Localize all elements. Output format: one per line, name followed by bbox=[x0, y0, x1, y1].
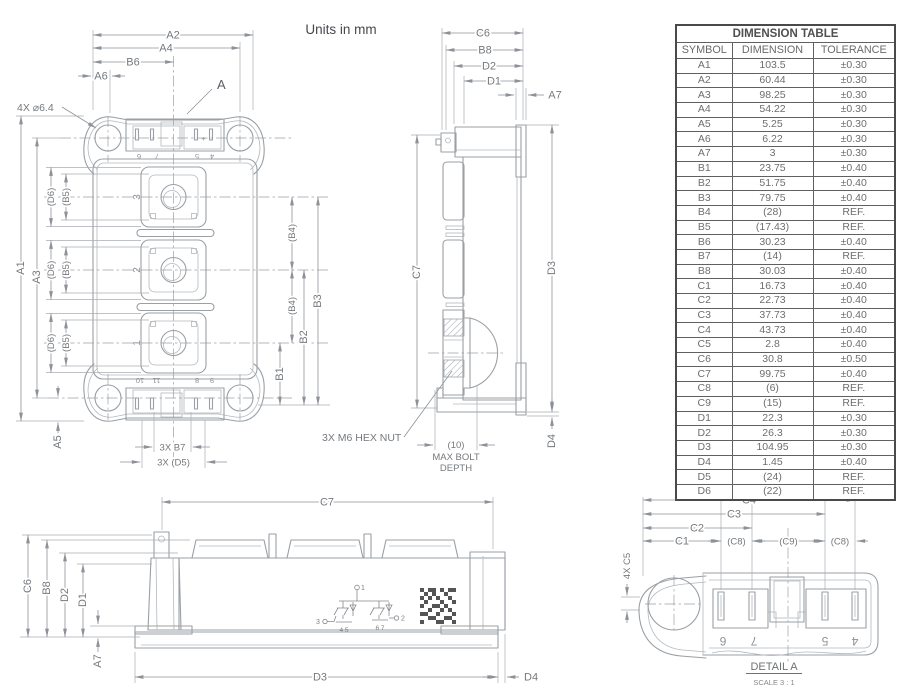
table-header-row: SYMBOL DIMENSION TOLERANCE bbox=[676, 43, 895, 59]
terminal-bump bbox=[382, 540, 458, 558]
symbol-cell: C4 bbox=[676, 323, 732, 338]
tolerance-cell: ±0.40 bbox=[813, 294, 895, 309]
symbol-cell: C8 bbox=[676, 382, 732, 397]
dim-b4: (B4) bbox=[287, 224, 298, 242]
table-row: D122.3±0.30 bbox=[676, 411, 895, 426]
symbol-cell: D1 bbox=[676, 411, 732, 426]
tolerance-cell: ±0.40 bbox=[813, 338, 895, 353]
dim-c8: (C8) bbox=[831, 537, 849, 548]
aux-pin bbox=[151, 398, 154, 409]
symbol-cell: B7 bbox=[676, 249, 732, 264]
dim-a6: A6 bbox=[94, 71, 107, 83]
circuit-schematic: 1 3 2 4 5 6 7 bbox=[316, 585, 405, 634]
dim-a2: A2 bbox=[166, 30, 179, 42]
side-view: C6 B8 D2 D1 A7 C7 D3 D4 bbox=[322, 28, 562, 475]
table-row: D3104.95±0.30 bbox=[676, 440, 895, 455]
dimension-cell: 30.23 bbox=[732, 235, 813, 250]
dimension-cell: 43.73 bbox=[732, 323, 813, 338]
dimension-cell: 26.3 bbox=[732, 426, 813, 441]
dimension-cell: 5.25 bbox=[732, 117, 813, 132]
table-row: B379.75±0.40 bbox=[676, 191, 895, 206]
terminal-bump bbox=[287, 540, 363, 558]
symbol-cell: B5 bbox=[676, 220, 732, 235]
tolerance-cell: REF. bbox=[813, 205, 895, 220]
units-note: Units in mm bbox=[286, 22, 396, 37]
dim-b4: (B4) bbox=[287, 297, 298, 315]
dim-c1: C1 bbox=[675, 536, 689, 548]
dimension-cell: (24) bbox=[732, 470, 813, 485]
symbol-cell: A6 bbox=[676, 132, 732, 147]
dim-b2: B2 bbox=[298, 330, 310, 343]
symbol-cell: B4 bbox=[676, 205, 732, 220]
drawing-sheet: Units in mm bbox=[0, 0, 909, 698]
pin-number: 5 bbox=[195, 152, 199, 161]
tolerance-cell: ±0.30 bbox=[813, 411, 895, 426]
symbol-cell: B6 bbox=[676, 235, 732, 250]
table-row: D6(22)REF. bbox=[676, 484, 895, 499]
dimension-cell: 54.22 bbox=[732, 103, 813, 118]
table-row: B5(17.43)REF. bbox=[676, 220, 895, 235]
table-row: C443.73±0.40 bbox=[676, 323, 895, 338]
dim-b7: 3X B7 bbox=[160, 443, 186, 454]
schematic-left-pins: 4 5 bbox=[339, 627, 348, 634]
dim-d3: D3 bbox=[546, 261, 558, 275]
aux-pin bbox=[151, 129, 154, 140]
dim-a4: A4 bbox=[159, 43, 172, 55]
dimension-cell: 16.73 bbox=[732, 279, 813, 294]
dimension-cell: 51.75 bbox=[732, 176, 813, 191]
dim-d4: D4 bbox=[524, 672, 538, 684]
table-row: A260.44±0.30 bbox=[676, 73, 895, 88]
symbol-cell: C6 bbox=[676, 352, 732, 367]
symbol-cell: C9 bbox=[676, 396, 732, 411]
hex-nut-note: 3X M6 HEX NUT bbox=[322, 432, 402, 444]
detail-dimensions: C4 C3 C2 C1 (C8) (C9) (C8) 4X C5 bbox=[621, 495, 868, 624]
table-row: B123.75±0.40 bbox=[676, 161, 895, 176]
pin-number: 6 bbox=[719, 634, 726, 648]
dim-b5: (B5) bbox=[61, 261, 72, 279]
tolerance-cell: ±0.40 bbox=[813, 367, 895, 382]
table-row: C337.73±0.40 bbox=[676, 308, 895, 323]
tolerance-cell: ±0.40 bbox=[813, 279, 895, 294]
dimension-cell: 99.75 bbox=[732, 367, 813, 382]
dimension-cell: (6) bbox=[732, 382, 813, 397]
table-row: A1103.5±0.30 bbox=[676, 59, 895, 74]
tolerance-cell: ±0.30 bbox=[813, 132, 895, 147]
tolerance-cell: ±0.40 bbox=[813, 161, 895, 176]
table-row: B4(28)REF. bbox=[676, 205, 895, 220]
table-row: B630.23±0.40 bbox=[676, 235, 895, 250]
schematic-node-3: 3 bbox=[316, 619, 320, 626]
aux-pin bbox=[195, 398, 198, 409]
aux-pin bbox=[195, 129, 198, 140]
bottom-dimensions: C7 C6 B8 D2 D1 A7 D3 bbox=[20, 497, 538, 684]
symbol-cell: D5 bbox=[676, 470, 732, 485]
tolerance-cell: REF. bbox=[813, 382, 895, 397]
dimension-cell: 30.8 bbox=[732, 352, 813, 367]
tolerance-cell: ±0.30 bbox=[813, 440, 895, 455]
dimension-cell: 104.95 bbox=[732, 440, 813, 455]
tolerance-cell: REF. bbox=[813, 249, 895, 264]
symbol-cell: B2 bbox=[676, 176, 732, 191]
qr-code bbox=[420, 588, 456, 624]
dim-b3: B3 bbox=[312, 294, 324, 307]
dimension-cell: 22.73 bbox=[732, 294, 813, 309]
dim-d1: D1 bbox=[487, 76, 501, 88]
dim-a5: A5 bbox=[52, 435, 64, 448]
polarity-mark: + bbox=[201, 134, 206, 143]
table-row: D5(24)REF. bbox=[676, 470, 895, 485]
pin-number: 4 bbox=[851, 634, 858, 648]
bottom-view: 1 3 2 4 5 6 7 bbox=[20, 497, 538, 684]
bolt-depth-value: (10) bbox=[448, 440, 465, 451]
bolt-depth-note-line1: MAX BOLT bbox=[432, 452, 480, 463]
symbol-cell: C5 bbox=[676, 338, 732, 353]
dim-c2: C2 bbox=[690, 523, 704, 535]
dim-d6: (D6) bbox=[46, 188, 57, 206]
tolerance-cell: ±0.30 bbox=[813, 103, 895, 118]
hex-nut-section bbox=[444, 360, 464, 377]
tolerance-cell: ±0.40 bbox=[813, 264, 895, 279]
detail-callout-a: A bbox=[217, 77, 226, 92]
tolerance-cell: ±0.40 bbox=[813, 455, 895, 470]
dim-c6: C6 bbox=[476, 28, 490, 40]
symbol-cell: D3 bbox=[676, 440, 732, 455]
dim-c7: C7 bbox=[320, 497, 334, 509]
dim-c6: C6 bbox=[22, 579, 34, 593]
table-row: C222.73±0.40 bbox=[676, 294, 895, 309]
pin-number: 9 bbox=[210, 376, 214, 385]
dimension-cell: 1.45 bbox=[732, 455, 813, 470]
dim-c7: C7 bbox=[411, 265, 423, 279]
pin-number: 5 bbox=[821, 634, 828, 648]
table-row: A55.25±0.30 bbox=[676, 117, 895, 132]
dimension-cell: 2.8 bbox=[732, 338, 813, 353]
symbol-cell: C2 bbox=[676, 294, 732, 309]
detail-caption: DETAIL A SCALE 3 : 1 bbox=[746, 661, 802, 687]
table-row: A454.22±0.30 bbox=[676, 103, 895, 118]
dimension-table-rows: A1103.5±0.30A260.44±0.30A398.25±0.30A454… bbox=[676, 59, 895, 500]
dim-b8: B8 bbox=[41, 581, 53, 594]
bolt-depth-note-line2: DEPTH bbox=[440, 463, 472, 474]
table-row: C9(15)REF. bbox=[676, 396, 895, 411]
dimension-cell: (17.43) bbox=[732, 220, 813, 235]
dimension-cell: (14) bbox=[732, 249, 813, 264]
pin-number: 7 bbox=[155, 152, 159, 161]
schematic-right-pins: 6 7 bbox=[375, 625, 384, 632]
aux-pin bbox=[136, 398, 139, 409]
symbol-cell: B8 bbox=[676, 264, 732, 279]
tolerance-cell: ±0.30 bbox=[813, 88, 895, 103]
terminal-bump bbox=[192, 540, 268, 558]
table-row: C116.73±0.40 bbox=[676, 279, 895, 294]
dim-d6: (D6) bbox=[46, 261, 57, 279]
dim-d1: D1 bbox=[77, 593, 89, 607]
pin-number: 7 bbox=[750, 634, 757, 648]
tolerance-cell: ±0.30 bbox=[813, 426, 895, 441]
table-row: B830.03±0.40 bbox=[676, 264, 895, 279]
dim-c3: C3 bbox=[727, 509, 741, 521]
detail-outline: 6 7 5 4 bbox=[639, 528, 878, 664]
tolerance-cell: ±0.40 bbox=[813, 323, 895, 338]
symbol-cell: C7 bbox=[676, 367, 732, 382]
front-top-aux-connector: + 6 7 5 4 bbox=[126, 119, 224, 161]
symbol-cell: B1 bbox=[676, 161, 732, 176]
aux-pin bbox=[210, 398, 213, 409]
pin-number: 8 bbox=[195, 376, 199, 385]
symbol-cell: C1 bbox=[676, 279, 732, 294]
column-header-dimension: DIMENSION bbox=[732, 43, 813, 59]
tolerance-cell: ±0.30 bbox=[813, 117, 895, 132]
dim-b1: B1 bbox=[274, 367, 286, 380]
tolerance-cell: REF. bbox=[813, 470, 895, 485]
dim-d5: 3X (D5) bbox=[157, 458, 190, 469]
table-row: C8(6)REF. bbox=[676, 382, 895, 397]
dimension-cell: 79.75 bbox=[732, 191, 813, 206]
pin-number: 11 bbox=[153, 376, 161, 385]
dim-d4: D4 bbox=[546, 434, 558, 448]
dimension-table: DIMENSION TABLE SYMBOL DIMENSION TOLERAN… bbox=[675, 24, 896, 501]
symbol-cell: A5 bbox=[676, 117, 732, 132]
table-row: B7(14)REF. bbox=[676, 249, 895, 264]
tolerance-cell: ±0.40 bbox=[813, 308, 895, 323]
pin-number: 10 bbox=[136, 376, 144, 385]
dim-a7: A7 bbox=[548, 90, 561, 102]
dim-a7: A7 bbox=[92, 654, 104, 667]
front-module-outline bbox=[84, 117, 264, 421]
table-row: A398.25±0.30 bbox=[676, 88, 895, 103]
hex-nut-section bbox=[444, 319, 464, 336]
schematic-node-2: 2 bbox=[401, 616, 405, 623]
dim-c8: (C8) bbox=[727, 537, 745, 548]
tolerance-cell: REF. bbox=[813, 220, 895, 235]
dimension-cell: (15) bbox=[732, 396, 813, 411]
dimension-cell: (22) bbox=[732, 484, 813, 499]
dim-b8: B8 bbox=[478, 45, 491, 57]
tolerance-cell: ±0.30 bbox=[813, 73, 895, 88]
dimension-cell: 60.44 bbox=[732, 73, 813, 88]
tolerance-cell: REF. bbox=[813, 484, 895, 499]
symbol-cell: D2 bbox=[676, 426, 732, 441]
dimension-cell: 3 bbox=[732, 147, 813, 162]
dim-a3: A3 bbox=[31, 270, 43, 283]
dimension-cell: (28) bbox=[732, 205, 813, 220]
detail-title: DETAIL A bbox=[750, 661, 798, 673]
side-module-outline bbox=[428, 125, 526, 415]
table-row: D226.3±0.30 bbox=[676, 426, 895, 441]
front-view: + 6 7 5 4 10 11 8 9 bbox=[15, 30, 330, 469]
dimension-cell: 23.75 bbox=[732, 161, 813, 176]
module-body bbox=[93, 159, 257, 379]
pin-number: 6 bbox=[137, 152, 141, 161]
dim-d2: D2 bbox=[59, 588, 71, 602]
dim-a1: A1 bbox=[15, 261, 27, 274]
table-row: C799.75±0.40 bbox=[676, 367, 895, 382]
symbol-cell: C3 bbox=[676, 308, 732, 323]
symbol-cell: D4 bbox=[676, 455, 732, 470]
column-header-symbol: SYMBOL bbox=[676, 43, 732, 59]
tolerance-cell: ±0.30 bbox=[813, 147, 895, 162]
dimension-cell: 22.3 bbox=[732, 411, 813, 426]
schematic-node-1: 1 bbox=[361, 585, 365, 592]
symbol-cell: A3 bbox=[676, 88, 732, 103]
symbol-cell: A2 bbox=[676, 73, 732, 88]
dim-c5: 4X C5 bbox=[622, 553, 633, 579]
table-row: C52.8±0.40 bbox=[676, 338, 895, 353]
dim-c9: (C9) bbox=[779, 537, 797, 548]
dim-d2: D2 bbox=[482, 61, 496, 73]
table-row: B251.75±0.40 bbox=[676, 176, 895, 191]
tolerance-cell: ±0.50 bbox=[813, 352, 895, 367]
table-row: A73±0.30 bbox=[676, 147, 895, 162]
tolerance-cell: ±0.40 bbox=[813, 191, 895, 206]
dimension-cell: 6.22 bbox=[732, 132, 813, 147]
dimension-cell: 37.73 bbox=[732, 308, 813, 323]
dim-d3: D3 bbox=[313, 672, 327, 684]
detail-a-view: 6 7 5 4 C4 C3 C2 C1 bbox=[621, 495, 878, 688]
symbol-cell: B3 bbox=[676, 191, 732, 206]
mounting-hole-note: 4X ⌀6.4 bbox=[17, 102, 54, 114]
detail-scale: SCALE 3 : 1 bbox=[753, 678, 794, 687]
dimension-cell: 30.03 bbox=[732, 264, 813, 279]
table-title: DIMENSION TABLE bbox=[676, 25, 895, 43]
dim-b6: B6 bbox=[126, 57, 139, 69]
symbol-cell: A7 bbox=[676, 147, 732, 162]
aux-pin bbox=[136, 129, 139, 140]
tolerance-cell: REF. bbox=[813, 396, 895, 411]
table-title-row: DIMENSION TABLE bbox=[676, 25, 895, 43]
aux-pin bbox=[210, 129, 213, 140]
tolerance-cell: ±0.40 bbox=[813, 176, 895, 191]
front-dimensions: A2 A4 B6 A6 A 4X ⌀6.4 A1 bbox=[15, 30, 330, 469]
symbol-cell: D6 bbox=[676, 484, 732, 499]
table-row: C630.8±0.50 bbox=[676, 352, 895, 367]
column-header-tolerance: TOLERANCE bbox=[813, 43, 895, 59]
tolerance-cell: ±0.30 bbox=[813, 59, 895, 74]
dim-b5: (B5) bbox=[61, 188, 72, 206]
dimension-cell: 98.25 bbox=[732, 88, 813, 103]
table-row: D41.45±0.40 bbox=[676, 455, 895, 470]
symbol-cell: A4 bbox=[676, 103, 732, 118]
dimension-cell: 103.5 bbox=[732, 59, 813, 74]
symbol-cell: A1 bbox=[676, 59, 732, 74]
dim-d6: (D6) bbox=[46, 334, 57, 352]
pin-number: 4 bbox=[210, 152, 214, 161]
tolerance-cell: ±0.40 bbox=[813, 235, 895, 250]
dim-b5: (B5) bbox=[61, 334, 72, 352]
table-row: A66.22±0.30 bbox=[676, 132, 895, 147]
